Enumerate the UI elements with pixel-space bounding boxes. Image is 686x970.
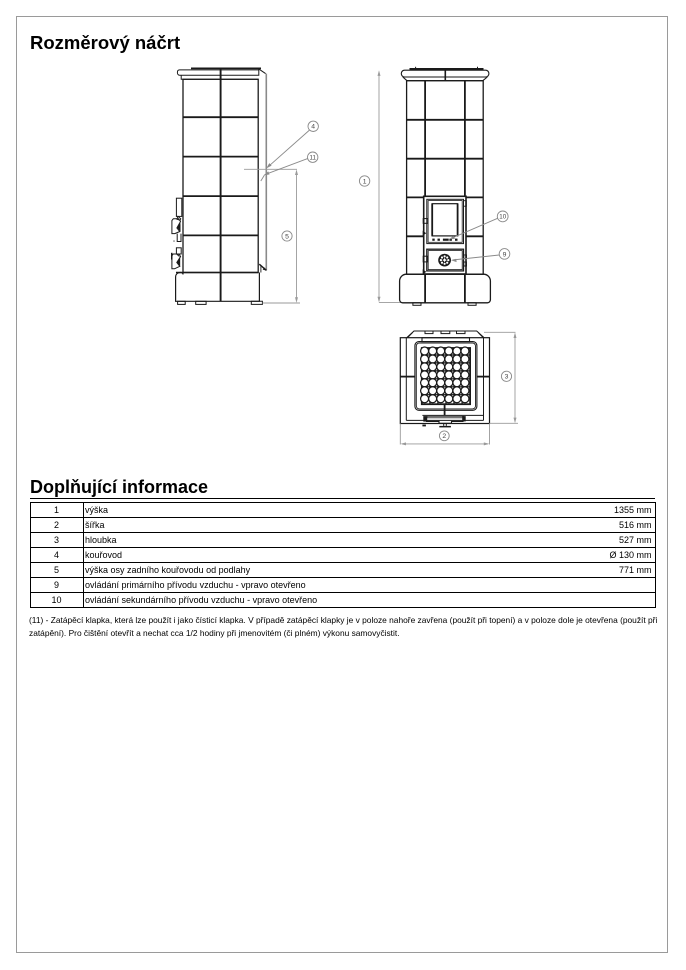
svg-text:10: 10 [499,214,506,221]
svg-text:1: 1 [363,178,367,185]
svg-text:3: 3 [505,374,509,381]
svg-text:11: 11 [309,154,316,161]
svg-text:5: 5 [285,233,289,240]
svg-text:4: 4 [311,124,315,131]
svg-text:9: 9 [503,251,507,258]
svg-text:2: 2 [442,433,446,440]
